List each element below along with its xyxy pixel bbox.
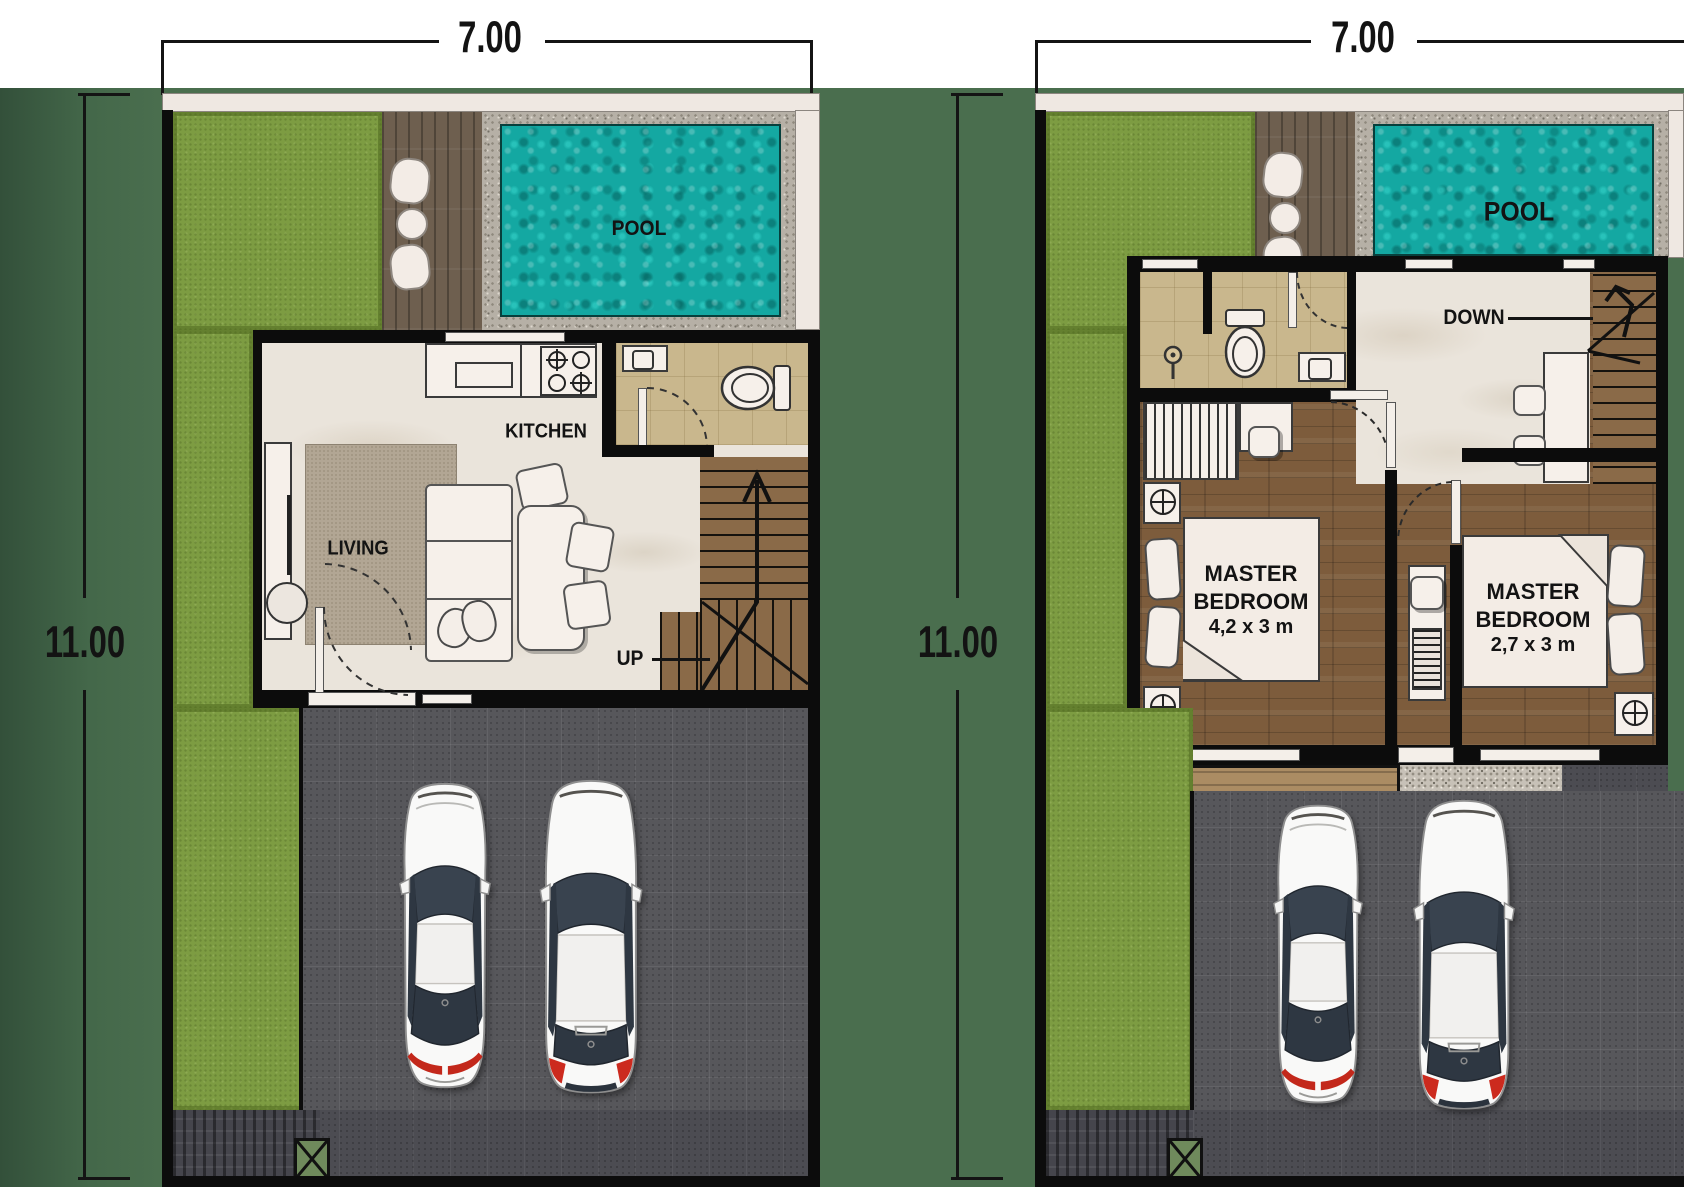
hall-desk — [1543, 352, 1589, 483]
deck-table — [1269, 202, 1301, 234]
corridor-bed2-wall — [1450, 545, 1462, 750]
driveway-apron — [1193, 1110, 1684, 1180]
lawn-bottom — [1046, 708, 1193, 1110]
bed2-pillow — [1606, 612, 1646, 676]
wardrobe — [1143, 402, 1239, 480]
bed2-door-arc — [1398, 482, 1454, 542]
dim-height-line-a — [956, 93, 959, 598]
side-pavement — [1562, 765, 1668, 791]
bed1-door-leaf — [1386, 402, 1396, 468]
wall-left-edge — [1035, 110, 1046, 1180]
window-top — [1405, 259, 1453, 269]
bath-divider — [1203, 272, 1212, 334]
dim-width-label: 7.00 — [1331, 13, 1395, 63]
toilet-icon — [1222, 308, 1268, 382]
bedroom2-size: 2,7 x 3 m — [1463, 633, 1603, 658]
pool — [1373, 124, 1654, 256]
floor-plan-sheet: 7.00 11.00 POOL — [0, 0, 1684, 1187]
balcony-door-gap — [1398, 747, 1454, 763]
bath-sink-bowl — [1308, 358, 1332, 380]
bedroom1-size: 4,2 x 3 m — [1176, 615, 1326, 640]
pool-label: POOL — [1484, 197, 1554, 228]
bed2-top-wall — [1462, 448, 1668, 462]
dim-height-line-b — [956, 690, 959, 1180]
bed1-corridor-wall — [1385, 470, 1397, 750]
plan-bottom-bar — [1035, 1176, 1684, 1187]
lamp-icon — [1622, 700, 1648, 726]
side-table — [1410, 576, 1444, 610]
car-suv — [1408, 795, 1520, 1113]
window-top — [1563, 259, 1595, 269]
lamp-icon — [1150, 489, 1176, 515]
shower-icon — [1160, 345, 1186, 381]
stool — [1248, 426, 1280, 458]
bedroom2-label: MASTER BEDROOM 2,7 x 3 m — [1463, 578, 1603, 658]
wall-right-pool — [1668, 110, 1684, 258]
bedroom1-name: MASTER BEDROOM — [1176, 560, 1326, 615]
gravel-pad-right — [1392, 765, 1562, 791]
dim-height-tick-bottom — [951, 1177, 1003, 1180]
hall-bath-wall — [1347, 272, 1356, 390]
driveway-edge — [1190, 791, 1194, 1110]
bed1-door-gap — [1330, 390, 1388, 400]
bed2-pillow — [1606, 544, 1646, 608]
wall-top — [1035, 93, 1684, 112]
bedroom1-label: MASTER BEDROOM 4,2 x 3 m — [1176, 560, 1326, 640]
drain-marker — [1167, 1138, 1203, 1180]
car-sedan — [1270, 800, 1366, 1110]
lawn-side — [1046, 330, 1127, 708]
bed1-door-arc — [1331, 402, 1391, 464]
ac-vent — [1412, 628, 1442, 690]
stairs-down-arrow — [1586, 275, 1658, 365]
dim-width-line — [1035, 40, 1311, 43]
window-bottom — [1180, 749, 1300, 761]
bath-door-arc — [1297, 272, 1349, 330]
bedroom2-name: MASTER BEDROOM — [1463, 578, 1603, 633]
window-bottom — [1480, 749, 1600, 761]
stairs-down-label: DOWN — [1443, 306, 1504, 330]
desk-chair — [1513, 385, 1546, 416]
window-top — [1142, 259, 1198, 269]
dim-height-label: 11.00 — [918, 618, 998, 668]
dim-width-line-left — [1035, 40, 1038, 95]
floor-plan-upper: 7.00 11.00 POOL — [0, 0, 1684, 1187]
bath-door-leaf — [1288, 272, 1297, 328]
dim-width-line2 — [1417, 40, 1684, 43]
